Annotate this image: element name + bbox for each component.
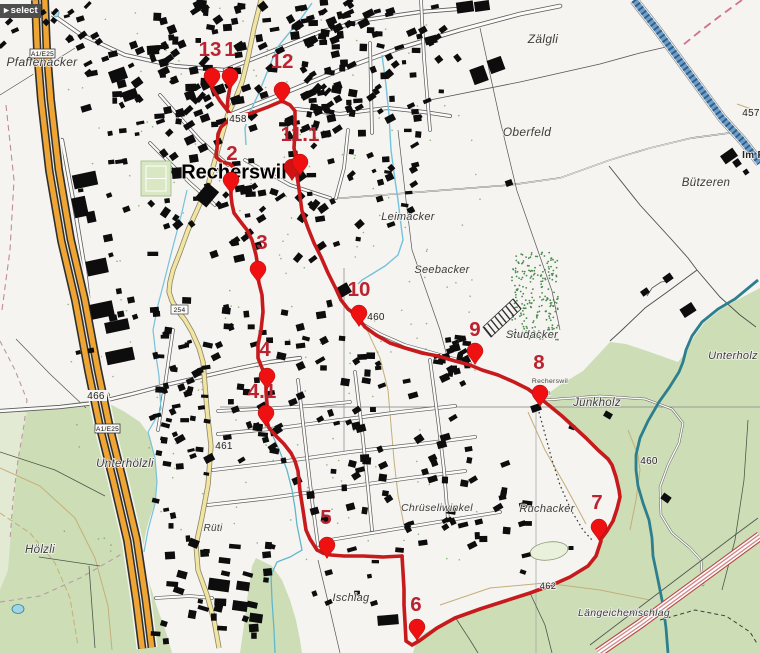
svg-text:4.1: 4.1: [248, 380, 277, 403]
svg-text:2: 2: [226, 142, 237, 165]
svg-text:Längeichenischlag: Längeichenischlag: [578, 607, 670, 619]
svg-text:4: 4: [259, 338, 271, 361]
svg-text:Studacker: Studacker: [506, 329, 559, 341]
svg-text:Recherswil: Recherswil: [532, 378, 568, 385]
svg-text:Unterhölzli: Unterhölzli: [96, 458, 154, 470]
svg-text:12: 12: [271, 50, 294, 73]
svg-text:Leimacker: Leimacker: [381, 211, 435, 223]
svg-text:10: 10: [348, 278, 371, 301]
svg-text:Bützeren: Bützeren: [682, 177, 730, 189]
svg-text:1: 1: [224, 38, 235, 61]
svg-text:Unterholz: Unterholz: [708, 350, 758, 362]
svg-text:Rüti: Rüti: [204, 523, 223, 534]
svg-text:Chrüseliwinkel: Chrüseliwinkel: [401, 502, 473, 514]
svg-text:457: 457: [742, 108, 760, 119]
svg-text:466: 466: [87, 391, 105, 402]
svg-text:3: 3: [256, 231, 267, 254]
svg-text:6: 6: [410, 593, 421, 616]
svg-text:13: 13: [199, 38, 222, 61]
svg-text:5: 5: [320, 506, 331, 529]
svg-text:11.1: 11.1: [281, 123, 320, 146]
svg-text:A1/E25: A1/E25: [96, 426, 119, 433]
svg-text:Im F: Im F: [742, 150, 760, 161]
svg-text:462: 462: [540, 581, 557, 592]
svg-text:7: 7: [591, 491, 602, 514]
svg-text:A1/E25: A1/E25: [31, 51, 54, 58]
svg-text:Junkholz: Junkholz: [572, 397, 621, 409]
svg-text:Seebacker: Seebacker: [414, 264, 470, 276]
svg-text:Zälgli: Zälgli: [527, 32, 559, 46]
svg-text:461: 461: [215, 441, 233, 452]
svg-text:460: 460: [367, 312, 385, 323]
svg-text:458: 458: [229, 114, 247, 125]
svg-text:Ruchacker: Ruchacker: [519, 503, 575, 515]
svg-text:460: 460: [640, 456, 658, 467]
svg-text:Ischlag: Ischlag: [333, 592, 371, 604]
svg-text:9: 9: [469, 318, 480, 341]
svg-text:Hölzli: Hölzli: [25, 544, 55, 556]
svg-text:Oberfeld: Oberfeld: [503, 125, 551, 139]
svg-text:254: 254: [174, 307, 186, 314]
svg-text:8: 8: [533, 351, 544, 374]
